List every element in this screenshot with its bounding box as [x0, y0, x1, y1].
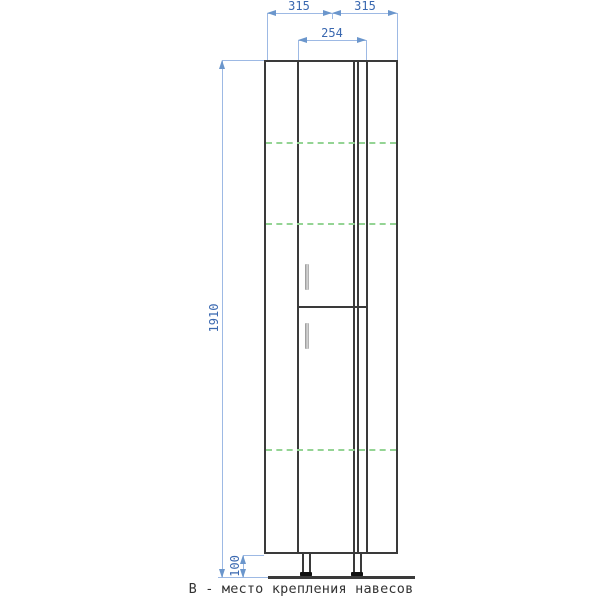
floor-line: [268, 576, 415, 579]
dim-ext-right: [397, 13, 398, 60]
arrow-left-icon: [332, 10, 341, 16]
dim-ext-door-left: [298, 40, 299, 60]
dim-label-width-right: 315: [349, 0, 381, 12]
door-divider-line: [297, 306, 368, 308]
dim-label-total-height: 1910: [208, 302, 220, 334]
arrow-right-icon: [323, 10, 332, 16]
arrow-up-icon: [219, 60, 225, 69]
dim-line-total-height: [222, 60, 223, 578]
hanger-mount-guide-line: [266, 223, 396, 225]
dim-ext-height-top: [222, 60, 264, 61]
upper-door-handle: [305, 264, 309, 290]
lower-door-handle: [305, 323, 309, 349]
arrow-left-icon: [267, 10, 276, 16]
arrow-down-icon: [219, 569, 225, 578]
dim-label-width-left: 315: [283, 0, 315, 12]
dim-ext-leg-top: [243, 555, 264, 556]
furniture-technical-drawing: 315 315 254 1910 100 В - место крепления…: [0, 0, 600, 600]
hanger-mount-guide-line: [266, 449, 396, 451]
arrow-left-icon: [298, 37, 307, 43]
hanger-mount-guide-line: [266, 142, 396, 144]
dim-label-leg-height: 100: [229, 553, 241, 579]
dim-line-door-width: [298, 40, 366, 41]
dim-ext-left: [267, 13, 268, 60]
dim-ext-door-right: [366, 40, 367, 60]
arrow-right-icon: [388, 10, 397, 16]
drawing-caption: В - место крепления навесов: [186, 581, 416, 597]
dim-label-door-width: 254: [316, 27, 348, 39]
arrow-right-icon: [357, 37, 366, 43]
